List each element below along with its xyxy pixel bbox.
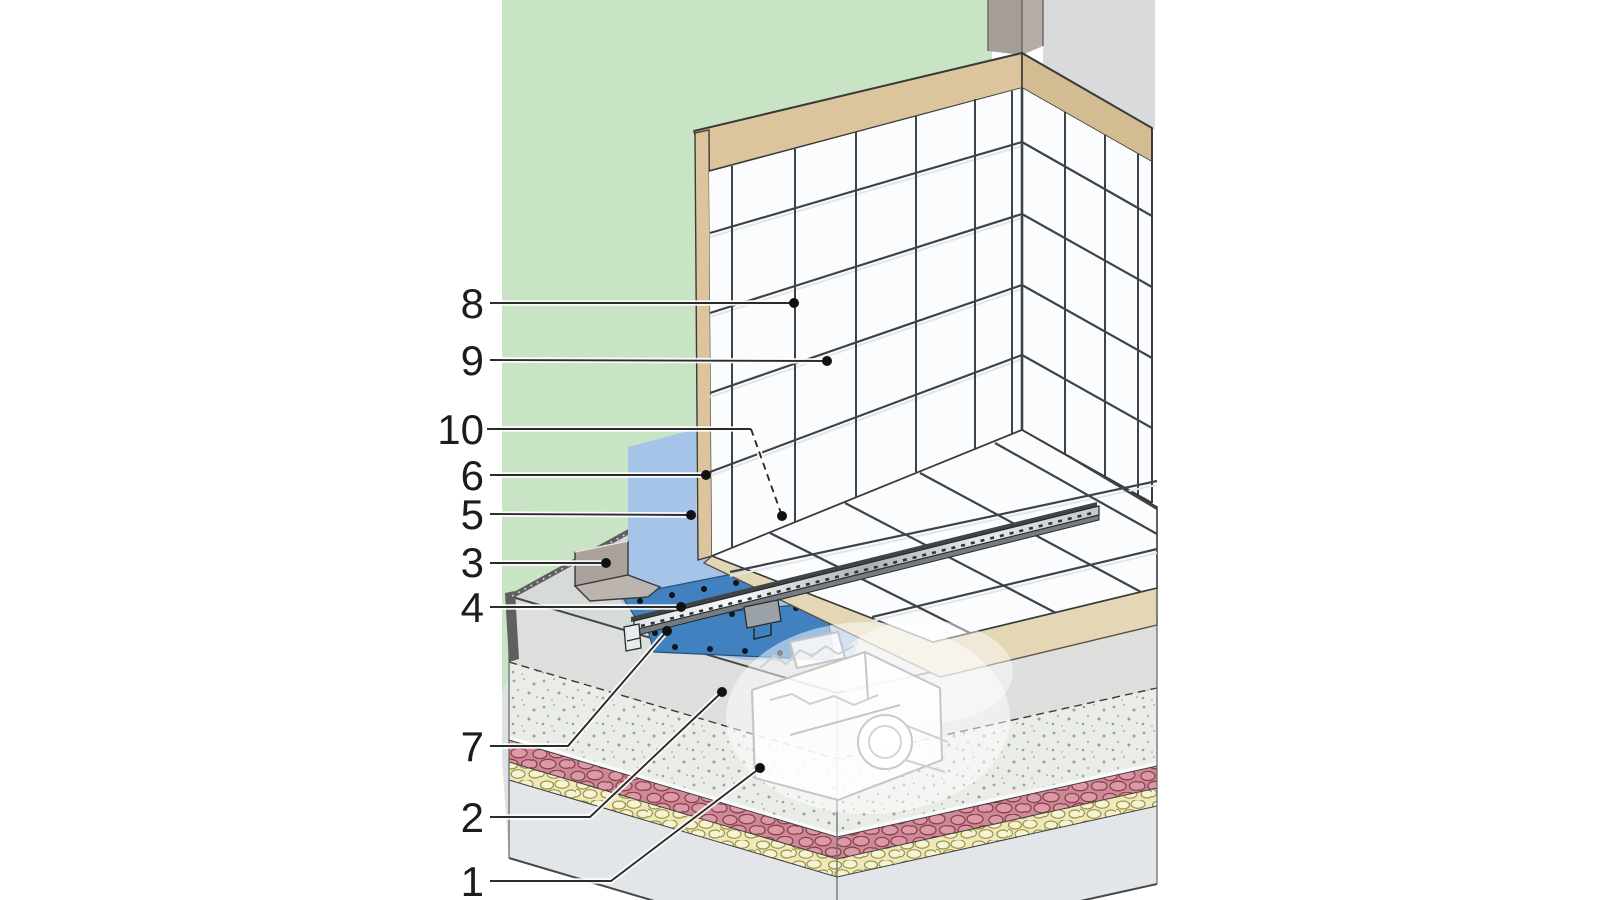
callout-number-8: 8 bbox=[461, 280, 484, 327]
callout-number-5: 5 bbox=[461, 491, 484, 538]
diagram-page: 8 9 10 6 5 3 4 7 2 1 bbox=[0, 0, 1600, 900]
callout-number-9: 9 bbox=[461, 337, 484, 384]
callout-number-7: 7 bbox=[461, 723, 484, 770]
callout-number-10: 10 bbox=[437, 406, 484, 453]
cutaway-diagram: 8 9 10 6 5 3 4 7 2 1 bbox=[0, 0, 1600, 900]
drain-end-cap bbox=[624, 624, 641, 651]
callout-number-2: 2 bbox=[461, 794, 484, 841]
leader-9 bbox=[490, 360, 827, 361]
leader-5 bbox=[490, 514, 691, 515]
callout-number-1: 1 bbox=[461, 858, 484, 900]
callout-number-4: 4 bbox=[461, 584, 484, 631]
column-left-face bbox=[988, 0, 1022, 55]
callout-number-3: 3 bbox=[461, 539, 484, 586]
column-right-face bbox=[1022, 0, 1043, 55]
